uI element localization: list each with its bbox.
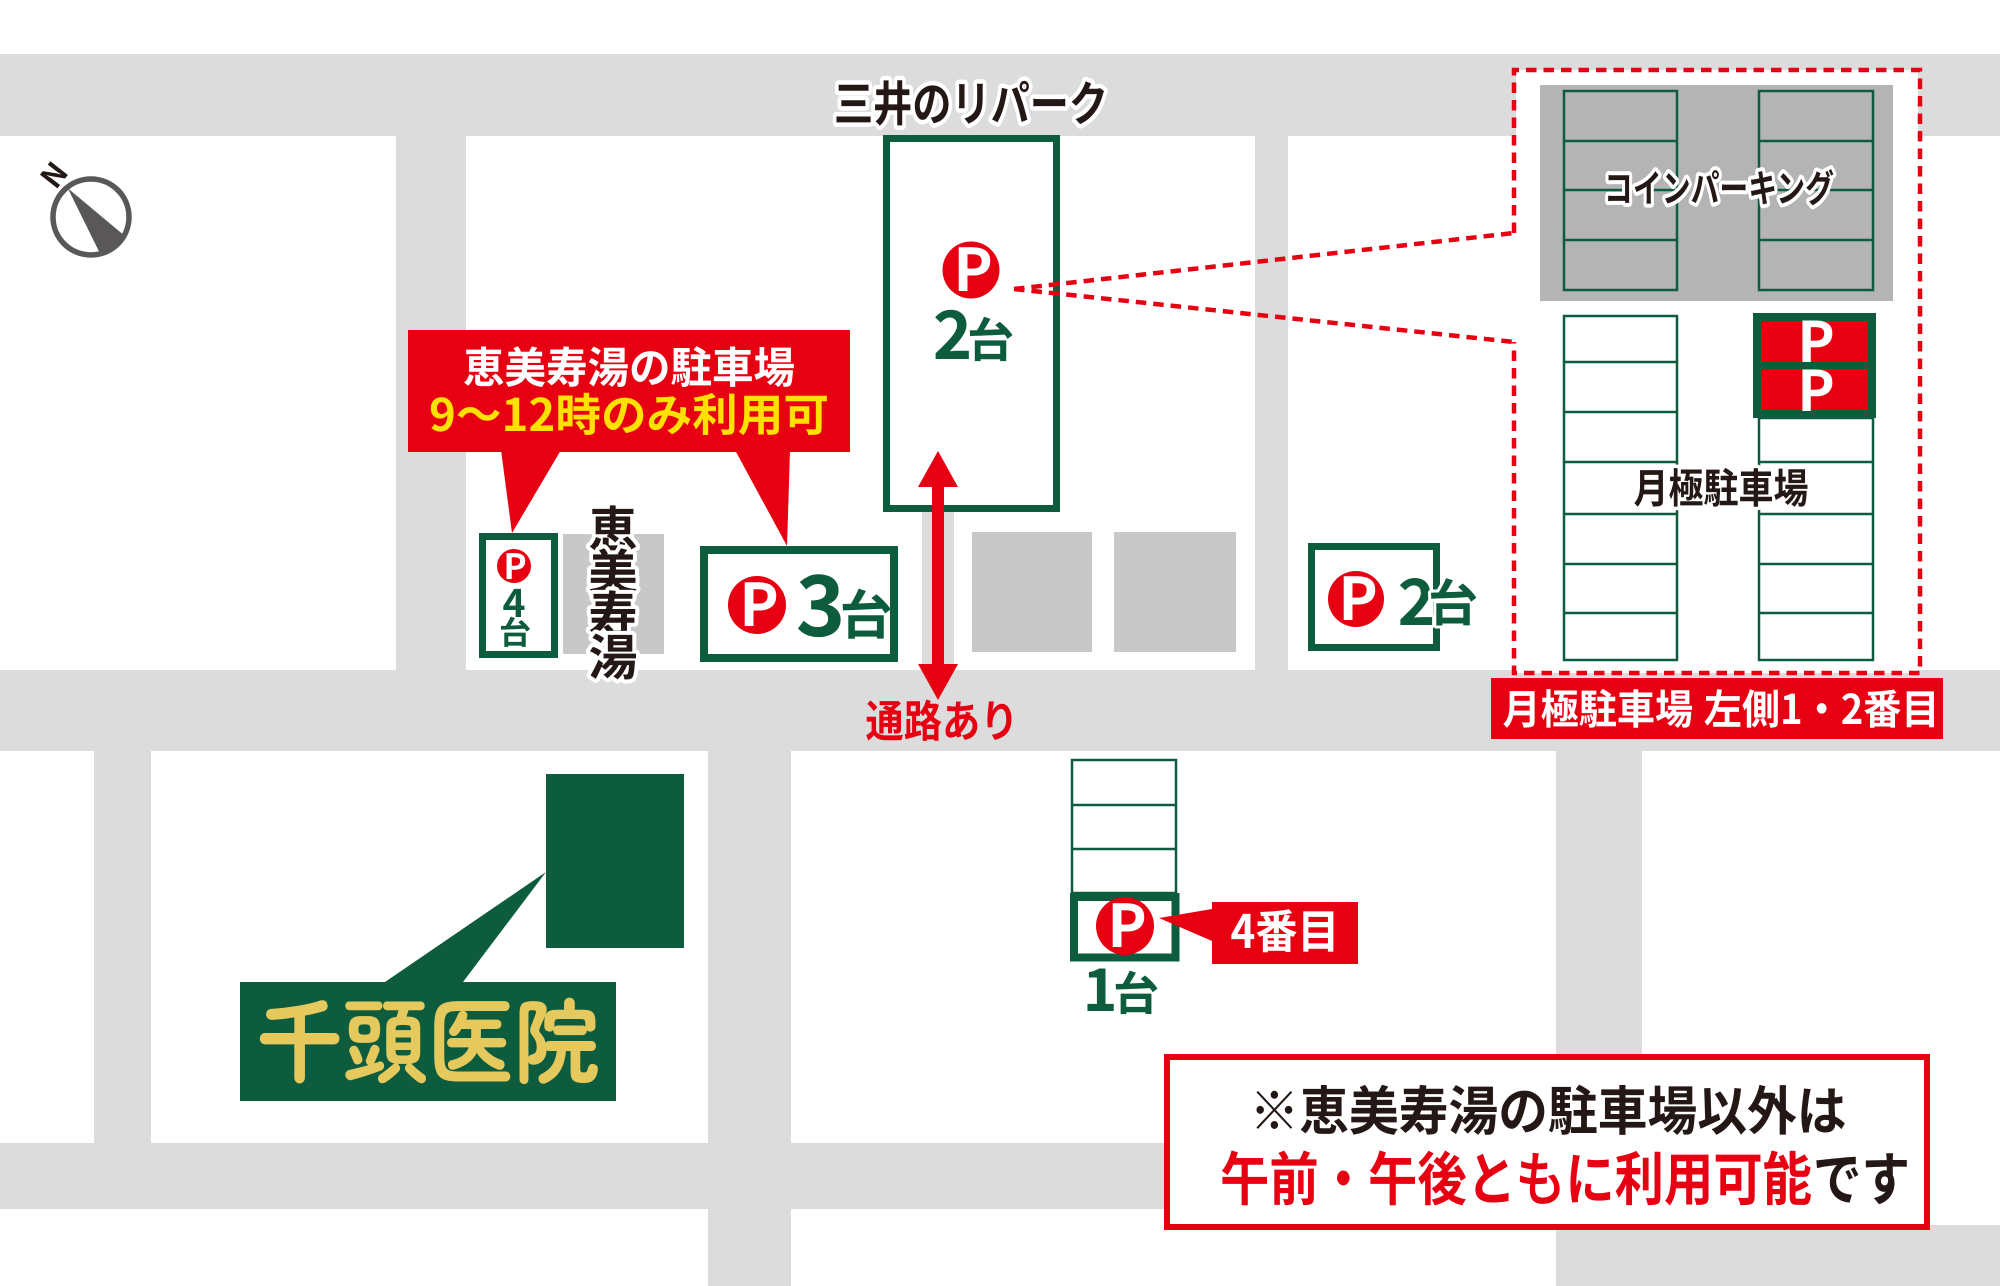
svg-text:P: P — [739, 558, 778, 643]
svg-text:3: 3 — [796, 540, 846, 661]
svg-text:通路あり: 通路あり — [866, 686, 1019, 750]
svg-text:台: 台 — [967, 302, 1014, 371]
svg-text:P: P — [1338, 552, 1377, 637]
svg-text:9〜12時のみ利用可: 9〜12時のみ利用可 — [429, 379, 829, 444]
svg-text:です: です — [1813, 1133, 1910, 1217]
svg-text:4番目: 4番目 — [1231, 896, 1340, 962]
svg-text:コインパーキング: コインパーキング — [1604, 158, 1834, 213]
svg-text:P: P — [1797, 347, 1834, 428]
svg-text:台: 台 — [1113, 958, 1159, 1024]
svg-text:午前・午後ともに利用可能: 午前・午後ともに利用可能 — [1220, 1133, 1812, 1217]
svg-text:台: 台 — [499, 608, 531, 654]
svg-text:湯: 湯 — [588, 619, 637, 690]
svg-text:台: 台 — [840, 574, 893, 650]
svg-text:三井のリパーク: 三井のリパーク — [834, 65, 1108, 135]
svg-text:月極駐車場 左側1・2番目: 月極駐車場 左側1・2番目 — [1503, 676, 1940, 736]
svg-text:台: 台 — [1428, 564, 1478, 636]
svg-text:月極駐車場: 月極駐車場 — [1634, 455, 1809, 515]
svg-text:千頭医院: 千頭医院 — [257, 970, 599, 1103]
